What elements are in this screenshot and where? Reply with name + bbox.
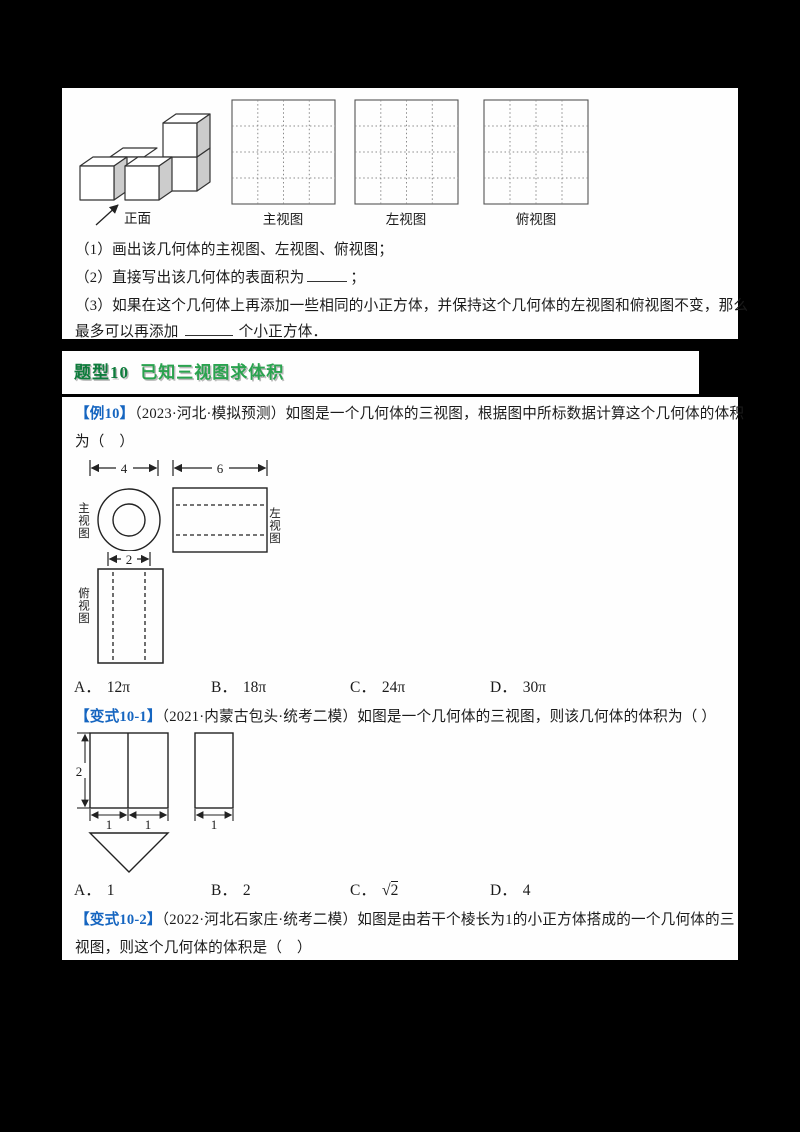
- problem-part3: （3）如果在这个几何体上再添加一些相同的小正方体，并保持这个几何体的左视图和俯视…: [75, 296, 748, 316]
- dim-front-width-value: 4: [121, 461, 128, 476]
- worksheet-page: { "overview_figure": { "front_label": "正…: [0, 0, 800, 1132]
- variation1-option-d: D．4: [490, 878, 530, 900]
- section-banner-tag: 题型10: [74, 363, 129, 382]
- variation2-text: （2022·河北石家庄·统考二模）如图是由若干个棱长为1的小正方体搭成的一个几何…: [162, 912, 735, 928]
- option-value: 12π: [107, 679, 130, 696]
- option-value: 4: [523, 882, 531, 899]
- variation1-option-c: C．√2: [350, 878, 398, 900]
- variation1-label: 【变式10-1】: [75, 709, 162, 725]
- section-banner-title: 已知三视图求体积: [140, 363, 284, 382]
- option-key: A．: [74, 679, 101, 696]
- option-key: D．: [490, 679, 517, 696]
- grid-front-view: [232, 100, 335, 204]
- variation1-line: 【变式10-1】（2021·内蒙古包头·统考二模）如图是一个几何体的三视图，则该…: [75, 707, 716, 727]
- dim-side-width-value: 6: [217, 461, 224, 476]
- problem-part4: 最多可以再添加个小正方体．: [62, 322, 327, 342]
- cube-stack-drawing: [80, 114, 210, 200]
- variation1-text: （2021·内蒙古包头·统考二模）如图是一个几何体的三视图，则该几何体的体积为（…: [162, 709, 716, 725]
- dim-front-right-value: 1: [145, 817, 152, 832]
- grid-front-view-label: 主视图: [263, 212, 304, 227]
- option-key: C．: [350, 679, 376, 696]
- problem-part1: （1）画出该几何体的主视图、左视图、俯视图；: [75, 240, 393, 260]
- example10-text: （2023·河北·模拟预测）如图是一个几何体的三视图，根据图中所标数据计算这个几…: [134, 406, 744, 422]
- dim-front-bottom: [90, 809, 168, 821]
- answer-blank-cube-count: [185, 322, 233, 336]
- example10-line1: 【例10】（2023·河北·模拟预测）如图是一个几何体的三视图，根据图中所标数据…: [75, 404, 744, 424]
- example10-option-a: A．12π: [74, 675, 130, 697]
- grid-top-view: [484, 100, 588, 204]
- option-value: 24π: [382, 679, 405, 696]
- cube-stack-and-grids-figure: 正面 主视图 左视图 俯视图: [70, 92, 610, 234]
- top-view-label: 俯视图: [77, 586, 90, 624]
- side-view-rect: [173, 488, 267, 552]
- option-key: B．: [211, 882, 237, 899]
- option-value: 18π: [243, 679, 266, 696]
- problem-part4-tail: 个小正方体．: [239, 324, 328, 340]
- example10-line2: 为（ ）: [75, 432, 134, 452]
- option-value: 2: [243, 882, 251, 899]
- top-view-rect: [98, 569, 163, 663]
- front-direction-arrow: [96, 205, 118, 225]
- grid-side-view-label: 左视图: [386, 212, 427, 227]
- front-view-rect: [90, 733, 168, 808]
- front-view-outer-circle: [98, 489, 160, 551]
- option-value: 30π: [523, 679, 546, 696]
- option-value: 1: [107, 882, 115, 899]
- front-view-inner-circle: [113, 504, 145, 536]
- sqrt-radicand: 2: [391, 881, 399, 899]
- example10-option-c: C．24π: [350, 675, 405, 697]
- option-key: D．: [490, 882, 517, 899]
- option-key: C．: [350, 882, 376, 899]
- problem-part4-text: 最多可以再添加: [75, 324, 179, 340]
- option-key: B．: [211, 679, 237, 696]
- grid-side-view: [355, 100, 458, 204]
- side-view-rect: [195, 733, 233, 808]
- sqrt-radical-sign: √: [382, 882, 391, 899]
- variation2-line2: 视图，则这个几何体的体积是（ ）: [75, 938, 312, 958]
- example10-option-d: D．30π: [490, 675, 546, 697]
- answer-blank-surface-area: [307, 268, 347, 282]
- problem-part2-tail: ；: [350, 270, 365, 286]
- front-view-label: 主视图: [77, 502, 90, 540]
- example10-label: 【例10】: [75, 406, 134, 422]
- variation1-option-a: A．1: [74, 878, 114, 900]
- problem-part2-text: （2）直接写出该几何体的表面积为: [75, 270, 304, 286]
- variation1-diagram: 2 1 1 1: [70, 728, 250, 880]
- top-view-triangle: [90, 833, 168, 872]
- dim-front-left-value: 1: [106, 817, 113, 832]
- example10-diagram: 4 主视图 6 左视图 2 俯视图: [70, 455, 300, 670]
- option-key: A．: [74, 882, 101, 899]
- variation1-option-b: B．2: [211, 878, 251, 900]
- variation2-line1: 【变式10-2】（2022·河北石家庄·统考二模）如图是由若干个棱长为1的小正方…: [75, 910, 735, 930]
- dim-inner-value: 2: [126, 552, 133, 567]
- front-direction-label: 正面: [124, 211, 151, 226]
- example10-option-b: B．18π: [211, 675, 266, 697]
- problem-part2: （2）直接写出该几何体的表面积为；: [75, 268, 365, 288]
- grid-top-view-label: 俯视图: [516, 212, 557, 227]
- side-view-label: 左视图: [268, 506, 281, 544]
- dim-side-value: 1: [211, 817, 218, 832]
- dim-height-value: 2: [76, 764, 83, 779]
- variation2-label: 【变式10-2】: [75, 912, 162, 928]
- section-banner: 题型10 已知三视图求体积: [74, 358, 284, 383]
